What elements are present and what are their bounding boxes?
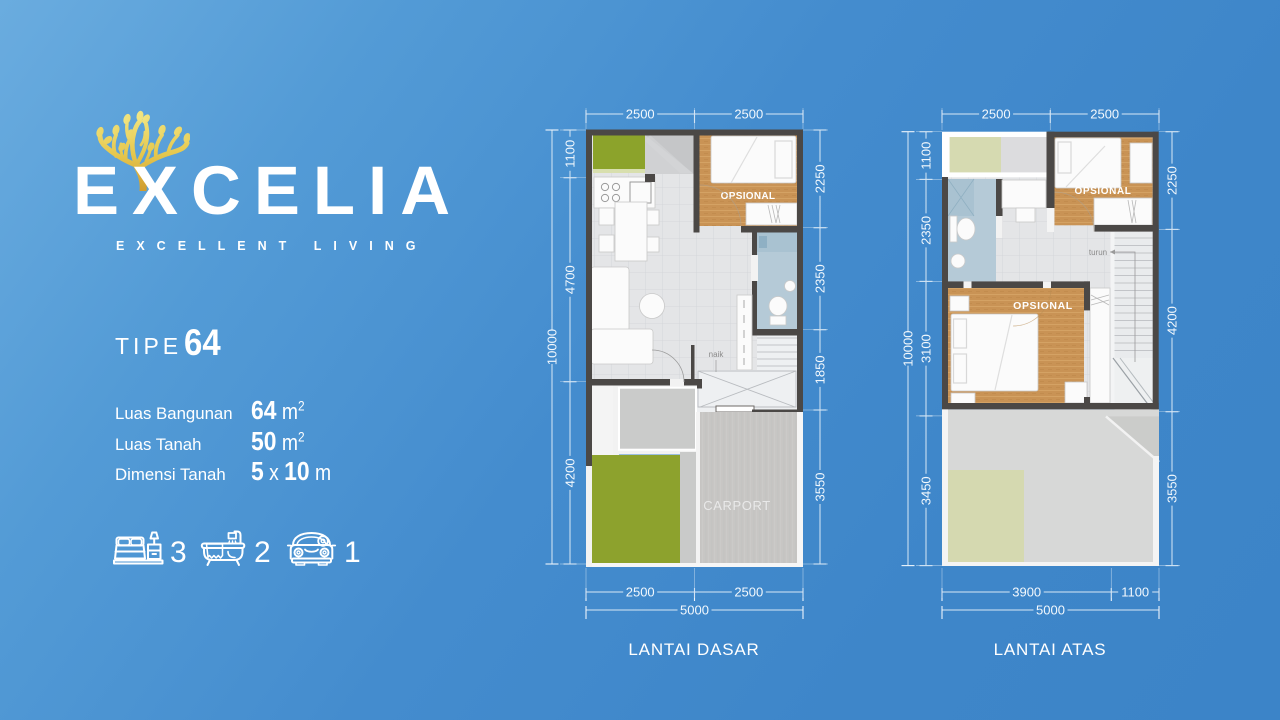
svg-text:2500: 2500 [1090, 107, 1119, 122]
svg-text:turun: turun [1089, 248, 1107, 257]
svg-text:10000: 10000 [545, 329, 560, 365]
svg-text:5000: 5000 [680, 603, 709, 618]
svg-text:2350: 2350 [813, 264, 828, 293]
svg-text:2500: 2500 [982, 107, 1011, 122]
svg-text:4200: 4200 [563, 458, 578, 487]
svg-text:2250: 2250 [813, 164, 828, 193]
svg-text:1100: 1100 [919, 142, 934, 170]
svg-text:3550: 3550 [1165, 474, 1180, 503]
svg-text:1100: 1100 [1121, 585, 1149, 600]
svg-text:4200: 4200 [1165, 306, 1180, 335]
svg-text:OPSIONAL: OPSIONAL [1013, 300, 1073, 312]
svg-text:4700: 4700 [563, 265, 578, 294]
svg-text:2500: 2500 [734, 107, 763, 122]
svg-text:2350: 2350 [919, 216, 934, 245]
svg-text:5000: 5000 [1036, 603, 1065, 618]
svg-text:2250: 2250 [1165, 166, 1180, 195]
svg-text:1100: 1100 [563, 140, 578, 168]
svg-text:3450: 3450 [919, 476, 934, 505]
svg-text:OPSIONAL: OPSIONAL [1074, 186, 1131, 197]
svg-text:3100: 3100 [919, 334, 934, 363]
svg-text:1850: 1850 [813, 355, 828, 384]
svg-text:2500: 2500 [734, 585, 763, 600]
svg-text:10000: 10000 [901, 331, 916, 367]
svg-text:naik: naik [709, 350, 725, 359]
svg-text:3900: 3900 [1012, 585, 1041, 600]
svg-text:3550: 3550 [813, 473, 828, 502]
svg-text:2500: 2500 [626, 585, 655, 600]
svg-text:2500: 2500 [626, 107, 655, 122]
svg-text:CARPORT: CARPORT [703, 498, 771, 513]
